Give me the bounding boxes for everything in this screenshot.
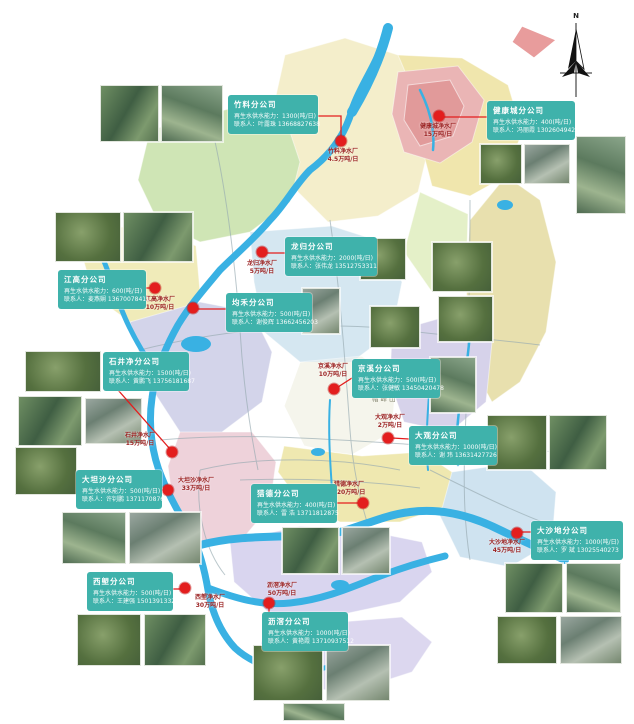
plant-label-jingxi: 京溪净水厂10万吨/日 xyxy=(318,363,348,378)
plant-label-longgui: 龙归净水厂5万吨/日 xyxy=(247,260,277,275)
site-photo xyxy=(100,85,159,142)
branch-contact: 联系人：黄鹏飞 13756181687 xyxy=(109,378,183,386)
site-photo xyxy=(576,136,626,214)
plant-marker-longgui[interactable] xyxy=(257,247,268,258)
branch-name: 猎德分公司 xyxy=(257,488,331,499)
branch-capacity: 再生水供水能力：500(吨/日) xyxy=(358,377,434,385)
branch-name: 健康城分公司 xyxy=(493,105,569,116)
plant-label-daguan: 大观净水厂2万吨/日 xyxy=(375,414,405,429)
plant-marker-dashadi[interactable] xyxy=(512,528,523,539)
branch-callout-dashadi[interactable]: 大沙地分公司 再生水供水能力：1000(吨/日) 联系人：罗 斌 1302554… xyxy=(531,521,623,560)
branch-callout-xilang[interactable]: 西塱分公司 再生水供水能力：500(吨/日) 联系人：王建强 150139133… xyxy=(87,572,173,611)
map-canvas: 竹料净水厂4.5万吨/日 健康城净水厂15万吨/日 江高净水厂10万吨/日 龙归… xyxy=(0,0,634,724)
branch-capacity: 再生水供水能力：1500(吨/日) xyxy=(109,370,183,378)
plant-marker-xilang[interactable] xyxy=(180,583,191,594)
compass-north-label: N xyxy=(556,12,596,20)
branch-contact: 联系人：罗 斌 13025540273 xyxy=(537,547,617,555)
plant-label-shijing: 石井净水厂15万吨/日 xyxy=(125,432,155,447)
branch-capacity: 再生水供水能力：500(吨/日) xyxy=(232,311,306,319)
plant-label-dashadi: 大沙地净水厂45万吨/日 xyxy=(489,539,525,554)
branch-contact: 联系人：王建强 15013913321 xyxy=(93,598,167,606)
branch-callout-jingxi[interactable]: 京溪分公司 再生水供水能力：500(吨/日) 联系人：张健敏 134504204… xyxy=(352,359,440,398)
branch-capacity: 再生水供水能力：600(吨/日) xyxy=(64,288,140,296)
site-photo xyxy=(549,415,607,470)
site-photo xyxy=(129,512,201,564)
branch-contact: 联系人：雷 浩 13711812875 xyxy=(257,510,331,518)
site-photo xyxy=(144,614,206,666)
site-photo xyxy=(25,351,101,392)
site-photo xyxy=(283,703,345,721)
branch-callout-liede[interactable]: 猎德分公司 再生水供水能力：400(吨/日) 联系人：雷 浩 137118128… xyxy=(251,484,337,523)
branch-capacity: 再生水供水能力：400(吨/日) xyxy=(257,502,331,510)
branch-name: 西塱分公司 xyxy=(93,576,167,587)
site-photo xyxy=(326,645,390,701)
plant-marker-datansha[interactable] xyxy=(163,485,174,496)
branch-contact: 联系人：张伟龙 13512753311 xyxy=(291,263,371,271)
plant-marker-junhe[interactable] xyxy=(188,303,199,314)
branch-capacity: 再生水供水能力：1300(吨/日) xyxy=(234,113,312,121)
branch-name: 京溪分公司 xyxy=(358,363,434,374)
plant-marker-liede[interactable] xyxy=(358,498,369,509)
plant-marker-shijing[interactable] xyxy=(167,447,178,458)
site-photo xyxy=(480,144,522,184)
site-photo xyxy=(62,512,126,564)
site-photo xyxy=(161,85,223,142)
branch-callout-daguan[interactable]: 大观分公司 再生水供水能力：1000(吨/日) 联系人：谢 玮 13631427… xyxy=(409,426,497,465)
branch-name: 江高分公司 xyxy=(64,274,140,285)
site-photo xyxy=(123,212,193,262)
branch-contact: 联系人：黄艳霞 13710937512 xyxy=(268,638,342,646)
branch-name: 沥滘分公司 xyxy=(268,616,342,627)
plant-label-zhuliao: 竹料净水厂4.5万吨/日 xyxy=(328,148,359,163)
branch-callout-junhe[interactable]: 均禾分公司 再生水供水能力：500(吨/日) 联系人：谢俊辉 136624562… xyxy=(226,293,312,332)
branch-capacity: 再生水供水能力：1000(吨/日) xyxy=(415,444,491,452)
branch-capacity: 再生水供水能力：500(吨/日) xyxy=(82,488,156,496)
branch-contact: 联系人：谢俊辉 13662456203 xyxy=(232,319,306,327)
site-photo xyxy=(282,527,339,574)
branch-name: 石井净分公司 xyxy=(109,356,183,367)
branch-name: 大坦沙分公司 xyxy=(82,474,156,485)
plant-label-xilang: 西塱净水厂30万吨/日 xyxy=(195,594,225,609)
site-photo xyxy=(566,563,621,613)
site-photo xyxy=(432,242,492,292)
plant-marker-zhuliao[interactable] xyxy=(336,136,347,147)
site-photo xyxy=(55,212,121,262)
branch-callout-lijiao[interactable]: 沥滘分公司 再生水供水能力：1000(吨/日) 联系人：黄艳霞 13710937… xyxy=(262,612,348,651)
branch-callout-longgui[interactable]: 龙归分公司 再生水供水能力：2000(吨/日) 联系人：张伟龙 13512753… xyxy=(285,237,377,276)
plant-label-jiankangcheng: 健康城净水厂15万吨/日 xyxy=(420,123,456,138)
branch-callout-zhuliao[interactable]: 竹料分公司 再生水供水能力：1300(吨/日) 联系人：叶露珠 13668827… xyxy=(228,95,318,134)
branch-name: 龙归分公司 xyxy=(291,241,371,252)
branch-callout-jiankangcheng[interactable]: 健康城分公司 再生水供水能力：400(吨/日) 联系人：冯丽霞 13026049… xyxy=(487,101,575,140)
branch-name: 竹料分公司 xyxy=(234,99,312,110)
site-photo xyxy=(253,645,323,701)
site-photo xyxy=(77,614,141,666)
plant-marker-lijiao[interactable] xyxy=(264,598,275,609)
branch-contact: 联系人：谢 玮 13631427726 xyxy=(415,452,491,460)
branch-contact: 联系人：张健敏 13450420478 xyxy=(358,385,434,393)
site-photo xyxy=(342,527,390,574)
site-photo xyxy=(15,447,77,495)
site-photo xyxy=(370,306,420,348)
branch-capacity: 再生水供水能力：400(吨/日) xyxy=(493,119,569,127)
site-photo xyxy=(18,396,82,446)
branch-contact: 联系人：叶露珠 13668827638 xyxy=(234,121,312,129)
branch-name: 均禾分公司 xyxy=(232,297,306,308)
branch-callout-jianggao[interactable]: 江高分公司 再生水供水能力：600(吨/日) 联系人：麦燕娴 136700784… xyxy=(58,270,146,309)
plant-label-datansha: 大坦沙净水厂33万吨/日 xyxy=(178,477,214,492)
site-photo xyxy=(505,563,563,613)
north-arrow-icon xyxy=(556,21,596,101)
plant-marker-jianggao[interactable] xyxy=(150,283,161,294)
branch-capacity: 再生水供水能力：500(吨/日) xyxy=(93,590,167,598)
branch-capacity: 再生水供水能力：2000(吨/日) xyxy=(291,255,371,263)
site-photo xyxy=(524,144,570,184)
site-photo xyxy=(438,296,493,342)
branch-callout-shijing[interactable]: 石井净分公司 再生水供水能力：1500(吨/日) 联系人：黄鹏飞 1375618… xyxy=(103,352,189,391)
branch-capacity: 再生水供水能力：1000(吨/日) xyxy=(268,630,342,638)
branch-name: 大沙地分公司 xyxy=(537,525,617,536)
plant-marker-jingxi[interactable] xyxy=(329,384,340,395)
site-photo xyxy=(560,616,622,664)
branch-callout-datansha[interactable]: 大坦沙分公司 再生水供水能力：500(吨/日) 联系人：许钊鹏 13711708… xyxy=(76,470,162,509)
compass: N xyxy=(556,12,596,105)
plant-label-liede: 猎德净水厂120万吨/日 xyxy=(333,481,366,496)
plant-marker-jiankangcheng[interactable] xyxy=(434,111,445,122)
plant-label-lijiao: 沥滘净水厂50万吨/日 xyxy=(267,582,297,597)
branch-name: 大观分公司 xyxy=(415,430,491,441)
branch-contact: 联系人：麦燕娴 13670078411 xyxy=(64,296,140,304)
plant-marker-daguan[interactable] xyxy=(383,433,394,444)
site-photo xyxy=(497,616,557,664)
branch-capacity: 再生水供水能力：1000(吨/日) xyxy=(537,539,617,547)
branch-contact: 联系人：许钊鹏 13711708761 xyxy=(82,496,156,504)
branch-contact: 联系人：冯丽霞 13026049428 xyxy=(493,127,569,135)
